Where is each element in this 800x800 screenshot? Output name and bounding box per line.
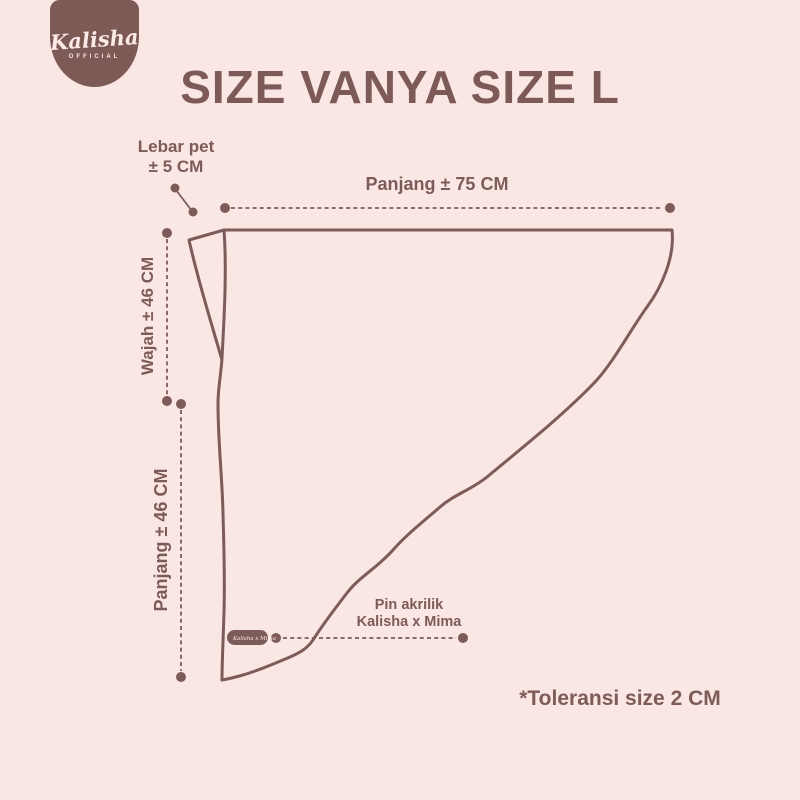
wajah-label: Wajah ± 46 CM	[138, 216, 158, 416]
panjang-side-measure-line	[176, 399, 186, 682]
pattern-diagram: Kalisha x Mima	[0, 0, 800, 800]
pin-akrilik-label-line1: Pin akrilik	[309, 597, 509, 614]
pin-measure-line	[271, 633, 468, 643]
lebar-pet-label: Lebar pet ± 5 CM	[106, 137, 246, 177]
lebar-pet-label-line2: ± 5 CM	[106, 157, 246, 177]
panjang-top-measure-line	[220, 203, 675, 213]
size-chart-page: Kalisha OFFICIAL SIZE VANYA SIZE L	[0, 0, 800, 800]
brand-tag-pill: Kalisha x Mima	[227, 630, 276, 645]
pin-akrilik-label: Pin akrilik Kalisha x Mima	[309, 597, 509, 630]
outline-left-edge	[218, 230, 225, 680]
pin-akrilik-label-line2: Kalisha x Mima	[309, 614, 509, 631]
panjang-top-label: Panjang ± 75 CM	[297, 174, 577, 195]
brand-tag-text: Kalisha x Mima	[232, 636, 276, 642]
outline-pet-dart	[189, 230, 224, 360]
tolerance-footnote: *Toleransi size 2 CM	[460, 687, 780, 712]
wajah-measure-line	[162, 228, 172, 406]
panjang-side-label: Panjang ± 46 CM	[151, 430, 171, 650]
lebar-pet-label-line1: Lebar pet	[106, 137, 246, 157]
lebar-pet-pointer	[171, 184, 198, 217]
